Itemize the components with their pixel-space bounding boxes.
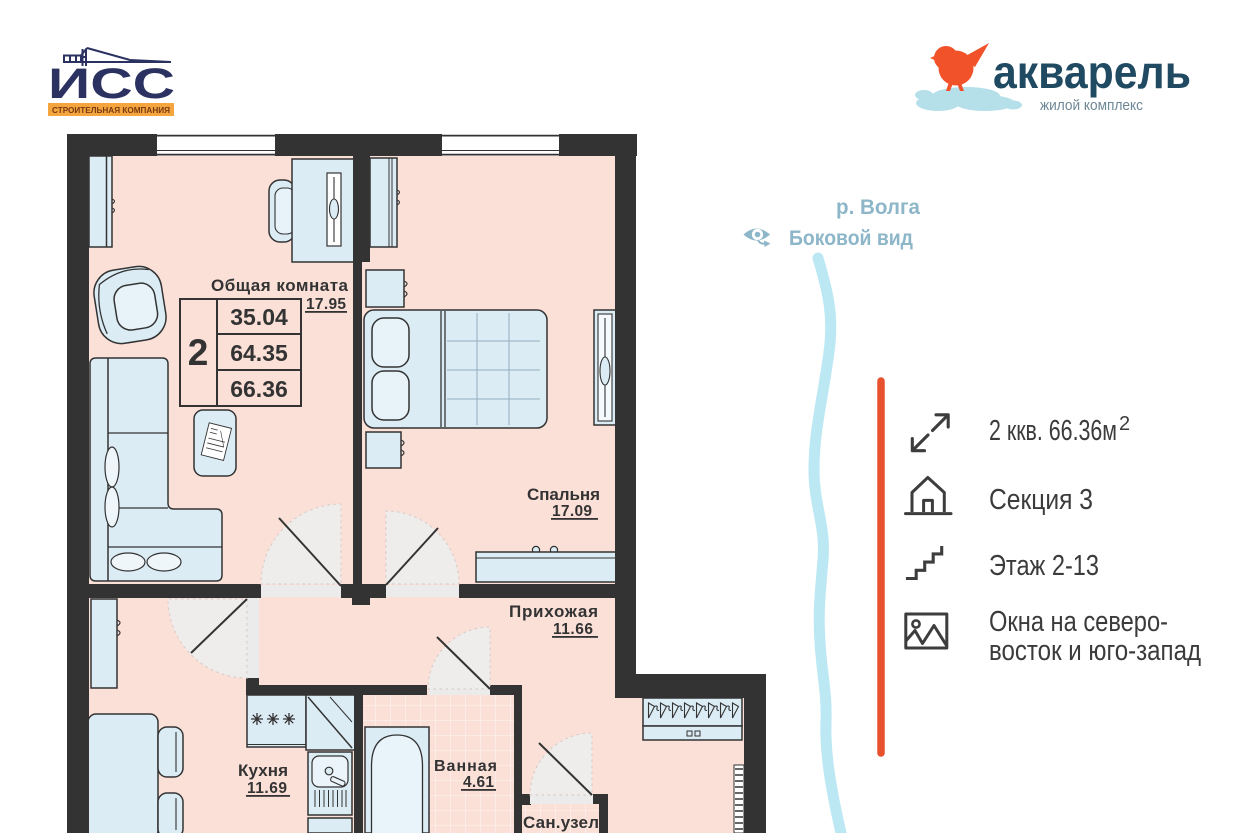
svg-text:66.36: 66.36 xyxy=(230,376,288,402)
svg-text:ИСС: ИСС xyxy=(48,60,175,108)
svg-text:17.09: 17.09 xyxy=(552,503,592,520)
svg-text:Общая комната: Общая комната xyxy=(211,276,349,295)
svg-text:Спальня: Спальня xyxy=(527,485,600,504)
svg-text:Окна на северо-: Окна на северо- xyxy=(989,606,1168,638)
svg-text:Сан.узел: Сан.узел xyxy=(523,813,599,832)
svg-text:2: 2 xyxy=(188,332,209,373)
svg-text:Секция 3: Секция 3 xyxy=(989,484,1093,516)
svg-text:р. Волга: р. Волга xyxy=(836,195,921,219)
svg-text:Кухня: Кухня xyxy=(238,761,288,780)
svg-text:4.61: 4.61 xyxy=(463,774,494,791)
svg-text:11.69: 11.69 xyxy=(247,780,287,797)
svg-text:17.95: 17.95 xyxy=(306,296,346,313)
svg-text:СТРОИТЕЛЬНАЯ КОМПАНИЯ: СТРОИТЕЛЬНАЯ КОМПАНИЯ xyxy=(52,106,170,115)
svg-text:жилой комплекс: жилой комплекс xyxy=(1040,98,1143,114)
svg-text:восток и юго-запад: восток и юго-запад xyxy=(989,635,1201,667)
svg-text:11.66: 11.66 xyxy=(553,621,593,638)
svg-text:Боковой вид: Боковой вид xyxy=(789,226,913,250)
svg-text:64.35: 64.35 xyxy=(230,340,288,366)
svg-text:Этаж 2-13: Этаж 2-13 xyxy=(989,550,1099,582)
svg-text:2 ккв. 66.36м: 2 ккв. 66.36м xyxy=(989,415,1117,447)
svg-text:2: 2 xyxy=(1119,413,1130,435)
svg-text:акварель: акварель xyxy=(993,46,1191,98)
svg-text:Прихожая: Прихожая xyxy=(509,602,598,621)
svg-text:Ванная: Ванная xyxy=(434,758,497,775)
svg-text:35.04: 35.04 xyxy=(230,304,288,330)
